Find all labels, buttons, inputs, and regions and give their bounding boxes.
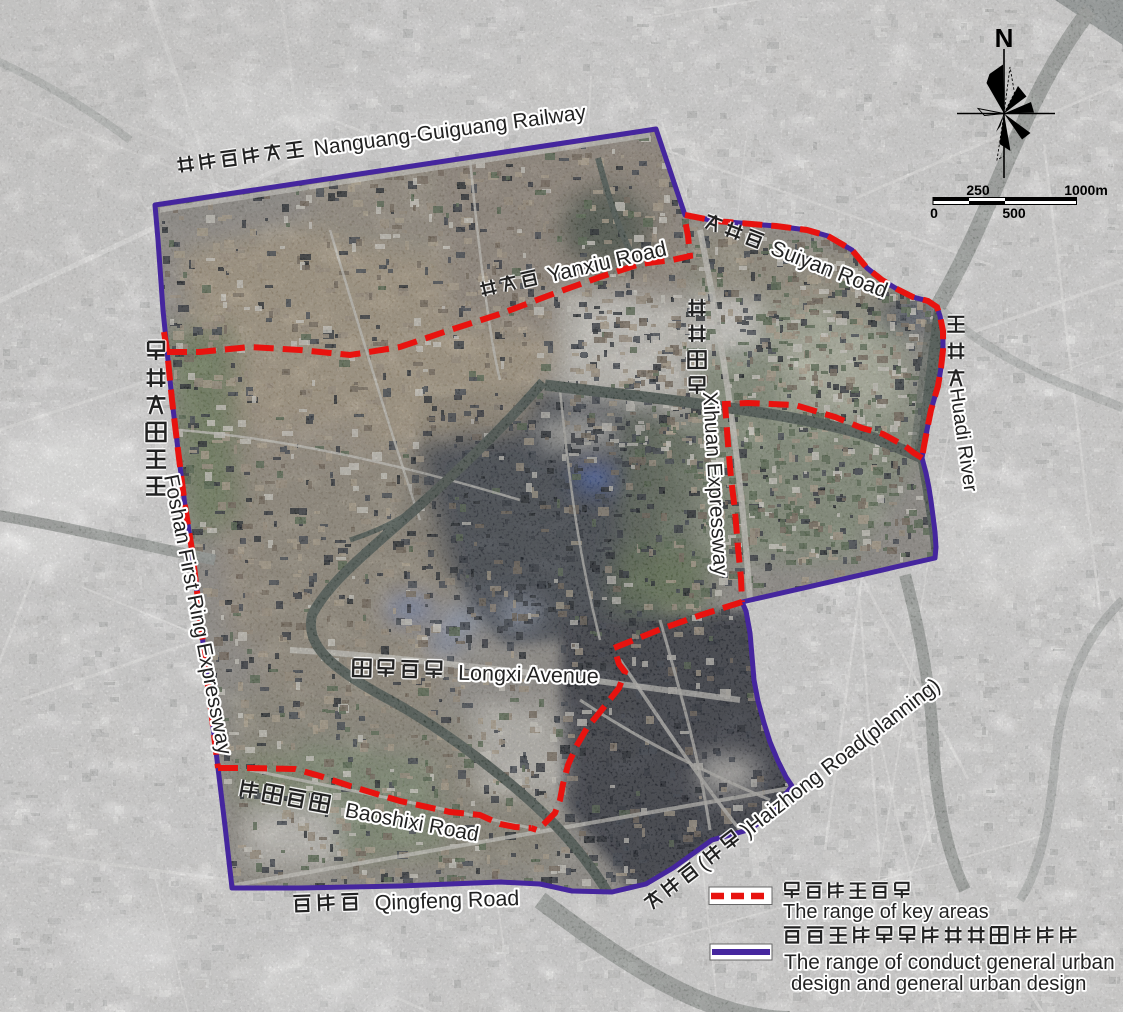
svg-text:250: 250: [966, 182, 990, 198]
svg-text:The range of conduct general u: The range of conduct general urban: [784, 951, 1115, 974]
svg-text:500: 500: [1002, 205, 1026, 221]
svg-text:0: 0: [930, 205, 938, 221]
svg-text:The range of key areas: The range of key areas: [783, 901, 989, 923]
svg-text:Longxi Avenue: Longxi Avenue: [458, 661, 599, 689]
svg-text:1000m: 1000m: [1064, 182, 1108, 198]
svg-text:Qingfeng Road: Qingfeng Road: [374, 886, 519, 915]
svg-text:design and general urban desig: design and general urban design: [791, 973, 1086, 995]
svg-text:N: N: [995, 23, 1014, 53]
